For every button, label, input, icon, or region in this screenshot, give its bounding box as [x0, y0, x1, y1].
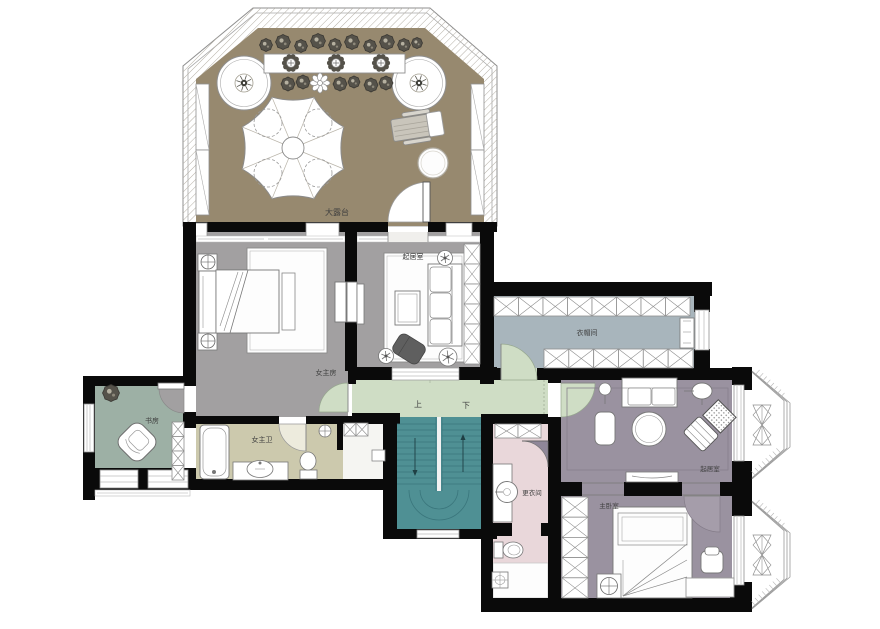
svg-text:更衣间: 更衣间 — [522, 488, 542, 497]
svg-text:书房: 书房 — [145, 416, 159, 425]
svg-text:女主房: 女主房 — [316, 368, 337, 377]
svg-text:主卧室: 主卧室 — [599, 501, 619, 510]
svg-text:女主卫: 女主卫 — [252, 435, 273, 444]
svg-text:上: 上 — [414, 400, 422, 409]
svg-text:起居室: 起居室 — [700, 464, 720, 473]
svg-text:大露台: 大露台 — [325, 207, 349, 217]
svg-text:衣帽间: 衣帽间 — [577, 328, 598, 337]
svg-text:起居室: 起居室 — [403, 252, 424, 261]
svg-text:下: 下 — [462, 401, 470, 410]
